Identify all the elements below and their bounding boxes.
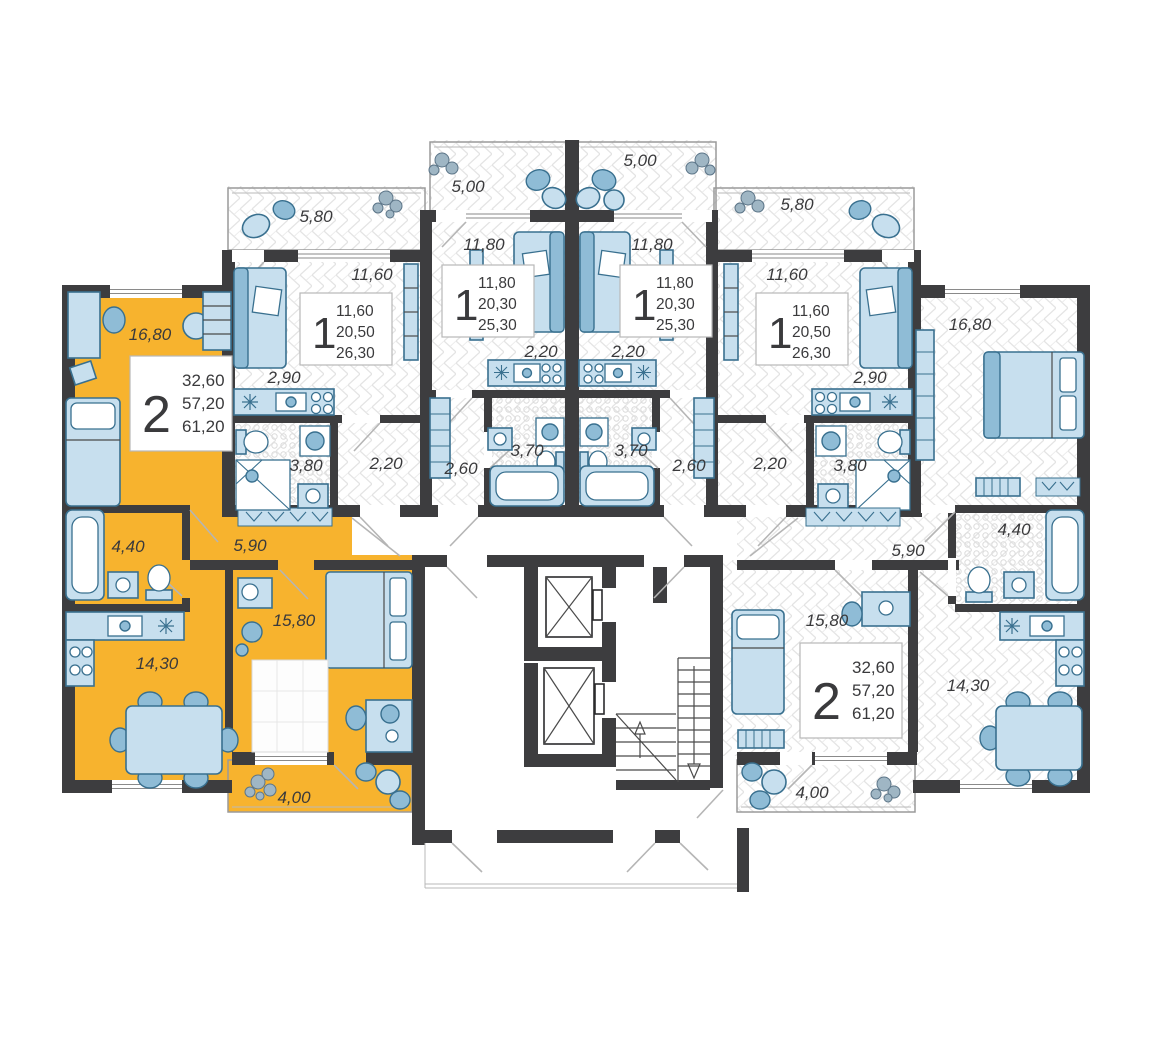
bathtub: [580, 466, 654, 506]
room-area-balcony: 4,00: [795, 783, 829, 802]
bookshelf: [738, 730, 784, 748]
room-area-kitchen: 2,90: [852, 368, 887, 387]
toilet: [236, 430, 268, 454]
area-living: 32,60: [852, 658, 895, 677]
area-partial: 57,20: [182, 394, 225, 413]
area-partial: 20,30: [656, 296, 695, 313]
area-living: 11,80: [656, 275, 694, 292]
room-count: 1: [312, 309, 336, 358]
area-partial: 20,50: [792, 324, 831, 341]
room-area-hall: 5,90: [233, 536, 267, 555]
room-area-hall: 2,20: [368, 454, 403, 473]
dining-table: [110, 692, 238, 788]
hall-wardrobe: [806, 508, 900, 526]
room-area-bath: 3,80: [289, 456, 323, 475]
room-area-balcony: 5,80: [299, 207, 333, 226]
toilet: [878, 430, 910, 454]
bathtub: [1046, 510, 1084, 600]
area-label[interactable]: 2 32,60 57,20 61,20: [800, 643, 902, 738]
sofa: [234, 268, 286, 368]
room-area-kitchen: 2,20: [523, 342, 558, 361]
sink: [488, 428, 512, 450]
room-area-kitchen: 2,90: [266, 368, 301, 387]
room-area-balcony: 5,00: [623, 151, 657, 170]
bed-single: [732, 610, 784, 714]
area-living: 11,80: [478, 275, 516, 292]
floor-plan-page: 2 32,60 57,20 61,20 16,80 4,40 5,90 14,3…: [0, 0, 1150, 1040]
hall-wardrobe: [238, 508, 332, 526]
bathtub: [490, 466, 564, 506]
elevator: [544, 668, 604, 744]
room-count: 1: [768, 309, 792, 358]
area-living: 11,60: [792, 303, 830, 320]
room-area-bedroom2: 15,80: [806, 611, 849, 630]
room-area-living: 11,80: [631, 235, 673, 254]
area-label[interactable]: 1 11,80 20,30 25,30: [442, 265, 534, 337]
kitchen-counter: [812, 389, 912, 415]
area-total: 25,30: [656, 317, 695, 334]
room-count: 2: [812, 673, 841, 731]
vestibule: [425, 843, 737, 888]
area-label[interactable]: 1 11,60 20,50 26,30: [756, 293, 848, 365]
room-area-balcony: 5,00: [451, 177, 485, 196]
area-partial: 20,50: [336, 324, 375, 341]
room-area-hall: 2,60: [443, 459, 478, 478]
shelf: [976, 478, 1020, 496]
tv-unit: [404, 264, 418, 360]
floor-plan: 2 32,60 57,20 61,20 16,80 4,40 5,90 14,3…: [0, 0, 1150, 1040]
room-area-living: 11,60: [766, 265, 808, 284]
room-area-kitchen: 14,30: [136, 654, 179, 673]
area-living: 32,60: [182, 371, 225, 390]
area-partial: 20,30: [478, 296, 517, 313]
room-area-bedroom: 16,80: [949, 315, 992, 334]
bed-single: [66, 398, 120, 506]
kitchen-counter: [234, 389, 334, 415]
staircase: [616, 658, 710, 782]
room-area-kitchen: 14,30: [947, 676, 990, 695]
room-area-bath: 3,80: [833, 456, 867, 475]
room-area-bedroom: 16,80: [129, 325, 172, 344]
bed-double: [984, 352, 1084, 438]
area-total: 26,30: [336, 345, 375, 362]
wardrobe: [916, 330, 934, 460]
sink: [108, 572, 138, 598]
wardrobe: [203, 292, 231, 350]
shower: [236, 460, 290, 510]
area-label[interactable]: 1 11,80 20,30 25,30: [620, 265, 712, 337]
area-partial: 57,20: [852, 681, 895, 700]
area-label[interactable]: 1 11,60 20,50 26,30: [300, 293, 392, 365]
room-area-kitchen: 2,20: [610, 342, 645, 361]
room-area-bath: 3,70: [510, 441, 544, 460]
room-count: 1: [632, 281, 656, 330]
tv-unit: [724, 264, 738, 360]
area-label[interactable]: 2 32,60 57,20 61,20: [130, 356, 232, 451]
room-area-living: 11,60: [351, 265, 393, 284]
area-total: 26,30: [792, 345, 831, 362]
room-area-hall: 2,60: [671, 456, 706, 475]
washing-machine: [300, 426, 330, 456]
room-area-bath: 3,70: [614, 441, 648, 460]
sink: [818, 484, 848, 508]
bathtub: [66, 510, 104, 600]
sink: [1004, 572, 1034, 598]
room-area-living: 11,80: [463, 235, 505, 254]
room-area-bedroom2: 15,80: [273, 611, 316, 630]
kitchen-counter: [579, 360, 656, 386]
area-total: 61,20: [852, 704, 895, 723]
sink: [298, 484, 328, 508]
room-count: 1: [454, 281, 478, 330]
toilet: [146, 565, 172, 600]
room-count: 2: [142, 386, 171, 444]
room-area-hall: 5,90: [891, 541, 925, 560]
hanger-rack: [1036, 478, 1080, 496]
toilet: [966, 567, 992, 602]
elevator: [546, 577, 602, 637]
room-area-hall: 2,20: [752, 454, 787, 473]
area-living: 11,60: [336, 303, 374, 320]
area-total: 25,30: [478, 317, 517, 334]
carpet: [252, 660, 328, 752]
washing-machine: [580, 418, 608, 446]
area-total: 61,20: [182, 417, 225, 436]
sofa: [860, 268, 912, 368]
kitchen-counter: [488, 360, 565, 386]
room-area-bath: 4,40: [997, 520, 1031, 539]
room-area-balcony: 4,00: [277, 788, 311, 807]
room-area-bath: 4,40: [111, 537, 145, 556]
washing-machine: [816, 426, 846, 456]
bed-double: [326, 572, 412, 668]
room-area-balcony: 5,80: [780, 195, 814, 214]
